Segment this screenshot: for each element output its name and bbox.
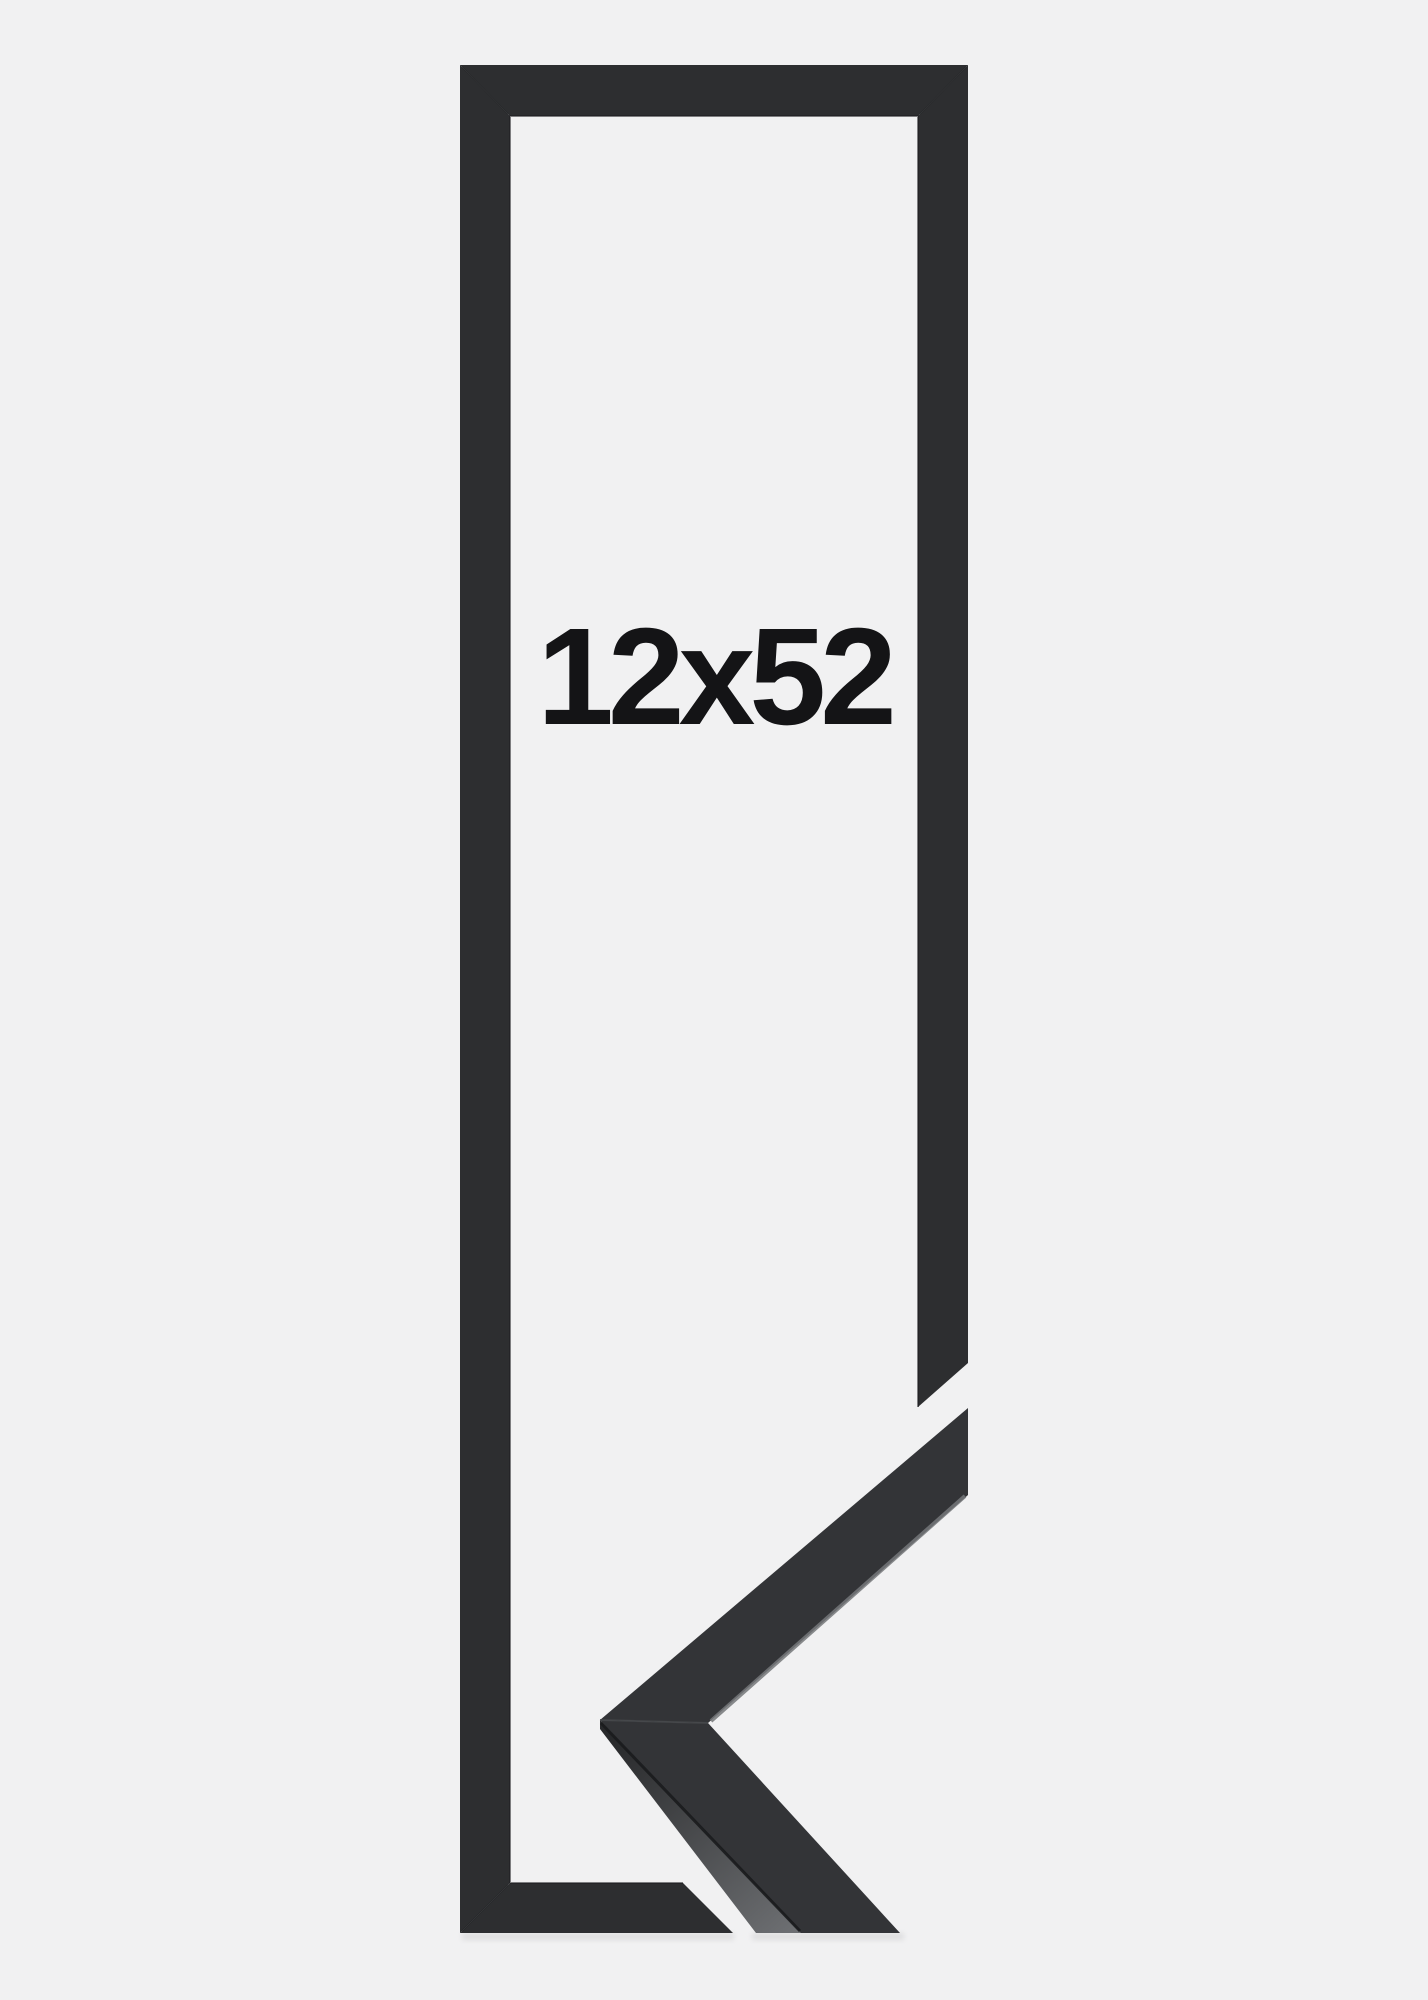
frame-left-bar bbox=[460, 65, 510, 1933]
shadow-under-frame bbox=[462, 1933, 734, 1940]
product-photo: 12x52 bbox=[0, 0, 1428, 2000]
contact-shadow bbox=[462, 1933, 904, 1940]
frame-right-bar bbox=[918, 65, 968, 1407]
shadow-under-sample bbox=[752, 1933, 904, 1940]
size-label: 12x52 bbox=[537, 600, 892, 754]
frame-product-image: 12x52 bbox=[0, 0, 1428, 2000]
frame-top-bar bbox=[460, 65, 968, 116]
